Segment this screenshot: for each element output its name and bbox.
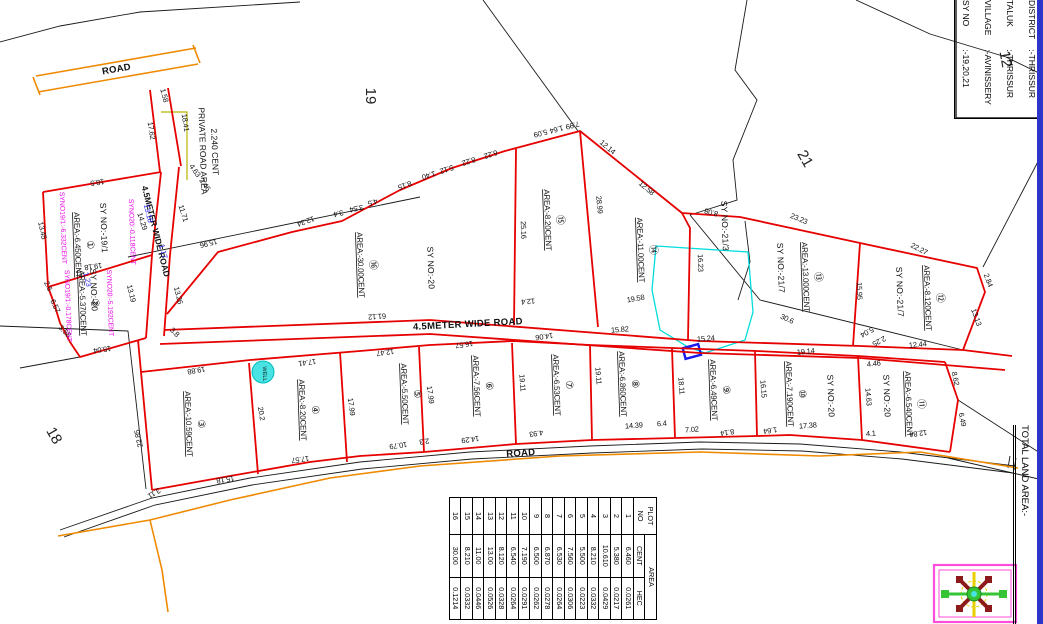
plot-area-label: AREA:-6.53CENT — [551, 354, 562, 416]
plot-area-label: AREA:-10.59CENT — [183, 391, 194, 457]
dimension-label: 8.08 — [704, 206, 720, 218]
table-cell: 6.540 — [507, 535, 519, 577]
dimension-label: 3.11 — [146, 486, 162, 500]
plot-number: ⑬ — [812, 272, 824, 282]
table-cell: 2 — [611, 498, 623, 535]
dimension-label: 7.99 — [565, 119, 581, 131]
title-row-village: VILLAGE :-AVINISSERY — [977, 0, 999, 118]
plot-number: ⑦ — [563, 380, 574, 389]
total-land-area-label: TOTAL LAND AREA:- — [1013, 425, 1030, 624]
dimension-label: 19.58 — [626, 293, 645, 305]
table-cell: 13.00 — [484, 535, 496, 577]
dimension-label: 18.5 — [90, 177, 105, 188]
dimension-label: 13.45 — [36, 221, 49, 240]
dimension-label: 2.6 — [42, 280, 54, 293]
syno-label: SY NO — [955, 0, 977, 47]
table-cell: 0.0223 — [576, 577, 588, 620]
dimension-label: 6.4 — [657, 419, 667, 429]
table-cell: 8 — [542, 498, 554, 535]
table-cell: 11.00 — [473, 535, 485, 577]
table-cell: 0.0332 — [461, 577, 473, 620]
table-cell: 0.0278 — [542, 577, 554, 620]
dimension-label: 12.44 — [908, 339, 927, 350]
dimension-label: 8.15 — [397, 179, 413, 192]
dimension-label: 14.06 — [535, 331, 554, 342]
dimension-label: 17.99 — [425, 385, 436, 404]
dimension-label: 15.82 — [611, 324, 629, 334]
dimension-label: 1.40 — [421, 169, 437, 182]
village-value: :-AVINISSERY — [983, 49, 993, 104]
dimension-label: 3.4 — [333, 208, 345, 219]
table-row: 48.2100.0332 — [588, 498, 600, 620]
dimension-label: 11.71 — [176, 204, 190, 223]
dimension-label: 17.62 — [146, 121, 158, 140]
dimension-label: 6.49 — [957, 412, 969, 427]
dimension-label: 18.11 — [676, 377, 686, 395]
dimension-label: 1.64 — [763, 425, 778, 436]
syno-value: :-19,20,21 — [961, 49, 971, 87]
table-cell: 12 — [496, 498, 508, 535]
plot-number: ① — [84, 240, 95, 249]
title-row-taluk: TALUK :-THRISSUR — [999, 0, 1021, 118]
plot-number: ⑨ — [720, 385, 731, 394]
table-header-hec: HEC — [634, 577, 646, 620]
well-label: WELL — [261, 366, 268, 381]
plot-area-label: AREA:-7.190CENT — [784, 361, 795, 427]
survey-number-label: SY NO:-19/1 — [98, 203, 110, 254]
plot-area-label: AREA:-5.370CENT — [77, 270, 88, 336]
table-header-cent: CENT — [634, 535, 646, 577]
table-cell: 0.0429 — [599, 577, 611, 620]
cyan-survey-overlay — [252, 246, 753, 383]
dimension-label: 13.26 — [172, 286, 185, 305]
dimension-label: 2.3 — [419, 436, 430, 446]
taluk-label: TALUK — [999, 0, 1021, 47]
dimension-label: 17.41 — [298, 357, 317, 368]
table-header-area: AREA — [645, 535, 657, 620]
table-row: 1411.000.0446 — [473, 498, 485, 620]
district-value: :-THRISSUR — [1027, 49, 1037, 98]
table-cell: 9 — [530, 498, 542, 535]
survey-drawing-canvas: ROAD PRIVATE ROAD AREA 2.240 CENT 4.5MET… — [0, 0, 1043, 624]
table-cell: 0.0446 — [473, 577, 485, 620]
table-cell: 5.380 — [611, 535, 623, 577]
table-cell: 14 — [473, 498, 485, 535]
table-cell: 10 — [519, 498, 531, 535]
village-label: VILLAGE — [977, 0, 999, 47]
table-row: 16.4600.0261 — [622, 498, 634, 620]
dimension-label: 22.85 — [132, 429, 145, 448]
survey-number-label: SY NO:-20 — [825, 374, 836, 417]
plot-area-label: AREA:-5.50CENT — [399, 363, 410, 425]
plot-area-label: AREA:-8.120CENT — [922, 265, 933, 331]
title-block: DISTRICT :-THRISSUR TALUK :-THRISSUR VIL… — [954, 0, 1043, 119]
table-cell: 8.210 — [588, 535, 600, 577]
table-cell: 0.0332 — [588, 577, 600, 620]
plot-area-label: AREA:-11.00CENT — [635, 217, 646, 282]
plot-number: ⑥ — [483, 381, 494, 390]
subdivision-split-label: SYNO20:-5.192CENT — [105, 270, 114, 337]
dimension-label: 17.99 — [346, 397, 357, 416]
plot-area-label: AREA:-6.49CENT — [708, 359, 719, 421]
table-cell: 5 — [576, 498, 588, 535]
dimension-label: 25.16 — [519, 221, 529, 239]
plot-number: ③ — [195, 419, 206, 428]
table-row: 116.5400.0264 — [507, 498, 519, 620]
survey-number-label: SY NO:-21/7 — [775, 243, 787, 294]
dimension-label: 17.38 — [799, 420, 817, 430]
table-cell: 7.190 — [519, 535, 531, 577]
table-header-plot-no: PLOTNO — [634, 498, 657, 535]
dimension-label: 28.99 — [594, 195, 605, 214]
table-row: 67.5600.0306 — [565, 498, 577, 620]
dimension-label: 4.93 — [529, 428, 544, 439]
table-cell: 0.0261 — [622, 577, 634, 620]
table-row: 1313.000.0526 — [484, 498, 496, 620]
table-row: 310.6100.0429 — [599, 498, 611, 620]
dimension-label: 8.62 — [950, 371, 962, 386]
dimension-label: 4.1 — [866, 429, 876, 439]
plot-number: ⑤ — [411, 389, 422, 398]
table-row: 96.5000.0262 — [530, 498, 542, 620]
generated-labels: 1.5817.6218.414.632.4611.7114.2913.1913.… — [36, 50, 1015, 501]
dimension-label: 16.15 — [758, 380, 768, 398]
table-cell: 0.0328 — [496, 577, 508, 620]
plot-number: ⑮ — [554, 215, 566, 225]
table-cell: 0.0217 — [611, 577, 623, 620]
plot-area-table: PLOTNO AREA CENT HEC 16.4600.026125.3800… — [433, 497, 657, 620]
plot-area-label: AREA:-7.56CENT — [471, 355, 482, 417]
plot-area-label: AREA:-6.540CENT — [903, 371, 914, 437]
table-cell: 13 — [484, 498, 496, 535]
dimension-label: 15.18 — [216, 473, 235, 485]
dimension-label: 15.04 — [93, 344, 112, 355]
road-label-left: 4.5METER WIDE ROAD — [140, 185, 172, 278]
table-cell: 7 — [553, 498, 565, 535]
plot-number: ⑧ — [629, 379, 640, 388]
table-cell: 0.0264 — [507, 577, 519, 620]
table-row: 1630.000.1214 — [450, 498, 462, 620]
table-row: 128.1200.0328 — [496, 498, 508, 620]
plot-number: ⑫ — [934, 293, 946, 303]
parent-survey-number: 18 — [42, 424, 65, 447]
dimension-label: 7.02 — [685, 425, 699, 435]
dimension-label: 15.95 — [855, 282, 865, 300]
table-cell: 6 — [565, 498, 577, 535]
dimension-label: 14.29 — [461, 434, 480, 445]
table-cell: 30.00 — [450, 535, 462, 577]
private-road-area-value: 2.240 CENT — [209, 128, 221, 175]
parent-survey-number: 19 — [362, 88, 379, 105]
plot-number: ⑯ — [367, 260, 379, 270]
dimension-label: 15.96 — [199, 237, 218, 250]
plot-number: ⑭ — [647, 245, 659, 255]
plot-number: ④ — [309, 405, 320, 414]
table-cell: 0.0526 — [484, 577, 496, 620]
dimension-label: 17.57 — [291, 454, 310, 465]
subdivision-split-label: SYNO20:-0.118CENT — [127, 199, 136, 265]
dimension-label: 5.04 — [859, 325, 875, 339]
survey-number-label: SY NO:-20 — [881, 374, 892, 417]
survey-number-label: SY NO:-21/7 — [894, 267, 906, 318]
table-cell: 3 — [599, 498, 611, 535]
table-cell: 16 — [450, 498, 462, 535]
table-cell: 6.870 — [542, 535, 554, 577]
table-row: 76.5300.0264 — [553, 498, 565, 620]
dimension-label: 3.8 — [168, 326, 181, 339]
title-row-syno: SY NO :-19,20,21 — [955, 0, 977, 118]
plot-number: ② — [89, 298, 100, 307]
plot-area-label: AREA:-6.860CENT — [617, 351, 628, 417]
dimension-label: 18.41 — [180, 113, 192, 132]
dimension-label: 20.2 — [256, 406, 267, 421]
dimension-label: 5.12 — [439, 163, 455, 176]
dimension-label: 8.14 — [720, 427, 735, 438]
taluk-value: :-THRISSUR — [1005, 49, 1015, 98]
table-cell: 0.0291 — [519, 577, 531, 620]
dimension-label: 12.4 — [521, 297, 535, 307]
dimension-label: 12.34 — [296, 214, 316, 229]
table-cell: 11 — [507, 498, 519, 535]
table-cell: 10.610 — [599, 535, 611, 577]
dimension-label: 14.39 — [625, 420, 643, 430]
table-row: 55.5000.0223 — [576, 498, 588, 620]
table-cell: 8.120 — [496, 535, 508, 577]
north-compass — [934, 565, 1016, 622]
table-cell: 0.0306 — [565, 577, 577, 620]
dimension-label: 3.54 — [349, 203, 364, 215]
dimension-label: 15.24 — [697, 333, 715, 343]
table-cell: 6.530 — [553, 535, 565, 577]
dimension-label: 16.57 — [455, 339, 474, 350]
dimension-label: 23.23 — [789, 211, 809, 226]
plot-area-label: AREA:-13.000CENT — [800, 242, 811, 312]
dimension-label: 19.14 — [796, 346, 815, 357]
table-cell: 4 — [588, 498, 600, 535]
dimension-label: 6.57 — [48, 298, 62, 314]
dimension-label: 8.22 — [461, 155, 477, 168]
dimension-label: 19.11 — [517, 374, 527, 392]
dimension-label: 6.22 — [483, 148, 499, 161]
table-row: 25.3800.0217 — [611, 498, 623, 620]
plot-area-label: AREA:-30.00CENT — [355, 232, 366, 298]
table-row: 107.1900.0291 — [519, 498, 531, 620]
table-cell: 0.0262 — [530, 577, 542, 620]
dimension-label: 16.23 — [696, 254, 706, 272]
dimension-label: 12.47 — [376, 347, 395, 358]
table-row: 158.2100.0332 — [461, 498, 473, 620]
table-cell: 15 — [461, 498, 473, 535]
dimension-label: 61.12 — [368, 311, 386, 321]
table-cell: 6.460 — [622, 535, 634, 577]
table-cell: 1 — [622, 498, 634, 535]
survey-number-label: SY NO:-21/3 — [719, 201, 731, 252]
dimension-label: 5.09 — [533, 127, 549, 139]
plot-area-label: AREA:-8.20CENT — [297, 379, 308, 441]
dimension-label: 13.19 — [125, 284, 138, 303]
table-cell: 6.500 — [530, 535, 542, 577]
plot-number: ⑪ — [915, 399, 927, 409]
road-label-center: 4.5METER WIDE ROAD — [413, 316, 523, 333]
dimension-label: 13.13 — [969, 307, 984, 327]
table-cell: 5.500 — [576, 535, 588, 577]
drawing-frame-edge — [1037, 0, 1043, 624]
survey-number-label: SY NO:-20 — [425, 246, 436, 289]
dimension-label: 30.6 — [779, 312, 795, 326]
road-label-bottom: ROAD — [506, 447, 536, 460]
plot-area-label: AREA:-6.450CENT — [72, 212, 83, 278]
plot-number: ⑩ — [796, 389, 807, 398]
dimension-label: 14.63 — [863, 388, 873, 406]
subdivision-split-label: SYNO19/1:-6.332CENT — [58, 192, 68, 264]
dimension-label: 10.79 — [389, 440, 408, 451]
table-cell: 8.210 — [461, 535, 473, 577]
table-cell: 7.560 — [565, 535, 577, 577]
dimension-label: 4.46 — [866, 358, 881, 368]
dimension-label: 1.64 — [549, 123, 565, 135]
table-row: 86.8700.0278 — [542, 498, 554, 620]
parent-survey-number: 21 — [793, 147, 816, 170]
dimension-label: 19.11 — [593, 367, 603, 385]
dimension-label: 12.58 — [637, 179, 656, 197]
table-cell: 0.1214 — [450, 577, 462, 620]
plot-area-label: AREA:-8.20CENT — [542, 189, 553, 251]
table-cell: 0.0264 — [553, 577, 565, 620]
